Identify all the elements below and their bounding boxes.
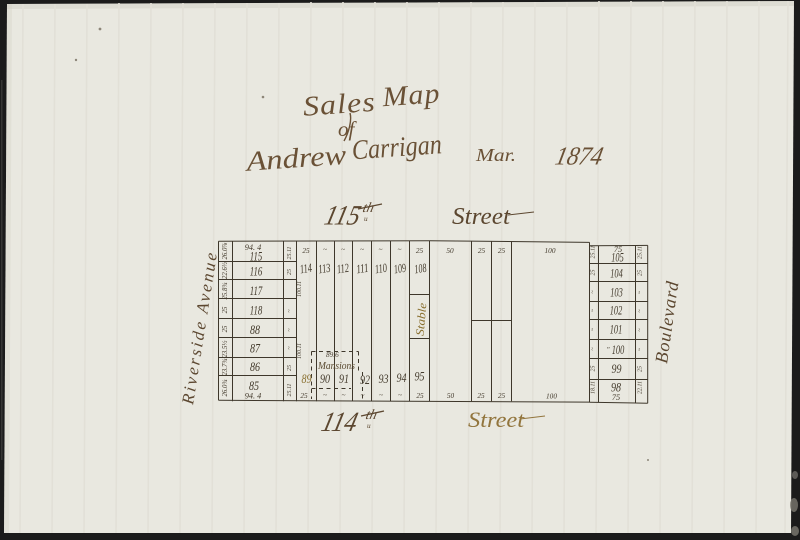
svg-text:1874: 1874 [553, 142, 606, 171]
svg-text:90: 90 [320, 372, 331, 386]
svg-text:105: 105 [611, 251, 624, 265]
svg-text:108: 108 [414, 261, 428, 277]
svg-text:23.5½: 23.5½ [222, 341, 229, 358]
svg-text:25: 25 [222, 325, 229, 332]
svg-text:75: 75 [612, 393, 620, 402]
svg-text:25: 25 [638, 366, 644, 372]
svg-text:25: 25 [477, 391, 485, 400]
svg-text:103: 103 [610, 286, 623, 300]
svg-text:116: 116 [250, 265, 263, 279]
svg-text:26.0¾: 26.0¾ [222, 380, 229, 397]
svg-text:25.11: 25.11 [638, 246, 644, 259]
svg-text:99: 99 [612, 362, 623, 376]
svg-text:25: 25 [416, 246, 424, 255]
svg-text:22.6½: 22.6½ [222, 262, 229, 279]
svg-text:25: 25 [416, 391, 424, 400]
svg-text:117: 117 [250, 284, 263, 298]
svg-text:~: ~ [379, 245, 383, 254]
svg-text:Mansions: Mansions [317, 361, 355, 372]
svg-text:25.11: 25.11 [287, 246, 293, 259]
svg-text:89: 89 [302, 372, 313, 386]
svg-text:89.6: 89.6 [326, 350, 339, 359]
svg-text:25: 25 [287, 365, 293, 371]
svg-text:~: ~ [360, 245, 364, 254]
svg-text:25: 25 [498, 246, 506, 255]
svg-text:Map: Map [380, 78, 441, 113]
svg-text:25: 25 [498, 391, 506, 400]
svg-text:95: 95 [415, 370, 425, 384]
svg-text:92: 92 [360, 373, 370, 387]
svg-text:25: 25 [302, 246, 310, 255]
svg-text:25: 25 [638, 270, 644, 276]
svg-text:~: ~ [323, 245, 327, 254]
svg-text:~: ~ [398, 245, 402, 254]
svg-text:115: 115 [250, 250, 263, 264]
svg-text:87: 87 [250, 342, 261, 356]
svg-text:50: 50 [447, 391, 455, 400]
svg-text:u: u [364, 214, 368, 223]
svg-text:101: 101 [610, 323, 623, 337]
svg-text:109: 109 [393, 261, 407, 277]
svg-text:94: 94 [397, 371, 407, 385]
svg-text:25: 25 [300, 391, 308, 400]
svg-text:100: 100 [546, 392, 557, 401]
svg-text:25: 25 [222, 306, 229, 313]
svg-text:86: 86 [250, 360, 261, 374]
svg-text:~: ~ [342, 391, 346, 400]
svg-text:18.11: 18.11 [591, 381, 597, 394]
svg-text:Street: Street [468, 407, 525, 432]
svg-text:25.8¾: 25.8¾ [222, 283, 229, 300]
svg-text:~: ~ [361, 391, 365, 400]
svg-text:50: 50 [446, 246, 454, 255]
svg-text:25: 25 [478, 246, 486, 255]
svg-text:102: 102 [610, 304, 623, 318]
svg-text:113: 113 [318, 261, 332, 277]
svg-text:Street: Street [452, 204, 511, 230]
svg-text:Mar.: Mar. [475, 145, 516, 165]
svg-text:104: 104 [610, 267, 623, 281]
svg-text:91: 91 [339, 372, 349, 386]
svg-text:100: 100 [612, 343, 625, 357]
svg-text:~: ~ [379, 391, 383, 400]
svg-text:118: 118 [250, 304, 263, 318]
svg-text:88: 88 [250, 323, 261, 337]
svg-text:112: 112 [336, 261, 350, 277]
svg-text:93: 93 [379, 372, 389, 386]
svg-text:25: 25 [287, 269, 293, 275]
svg-text:25: 25 [591, 270, 597, 276]
svg-text:23.7¾: 23.7¾ [222, 359, 229, 376]
svg-text:100: 100 [545, 246, 556, 255]
svg-text:26.0⅞: 26.0⅞ [222, 243, 229, 260]
svg-text:111: 111 [356, 261, 370, 277]
svg-text:u: u [367, 421, 371, 430]
svg-text:25.11: 25.11 [591, 245, 597, 258]
svg-text:94. 4: 94. 4 [245, 392, 262, 401]
svg-text:Carrigan: Carrigan [351, 129, 443, 166]
svg-text:25: 25 [591, 366, 597, 372]
svg-text:100.11: 100.11 [297, 281, 303, 297]
svg-text:~: ~ [341, 245, 345, 254]
svg-text:100.11: 100.11 [297, 343, 303, 359]
svg-text:~: ~ [323, 391, 327, 400]
svg-text:22.11: 22.11 [638, 381, 644, 394]
svg-text:114: 114 [299, 261, 313, 277]
svg-text:25.11: 25.11 [287, 383, 293, 396]
svg-text:~: ~ [398, 391, 402, 400]
svg-text:110: 110 [374, 261, 388, 277]
